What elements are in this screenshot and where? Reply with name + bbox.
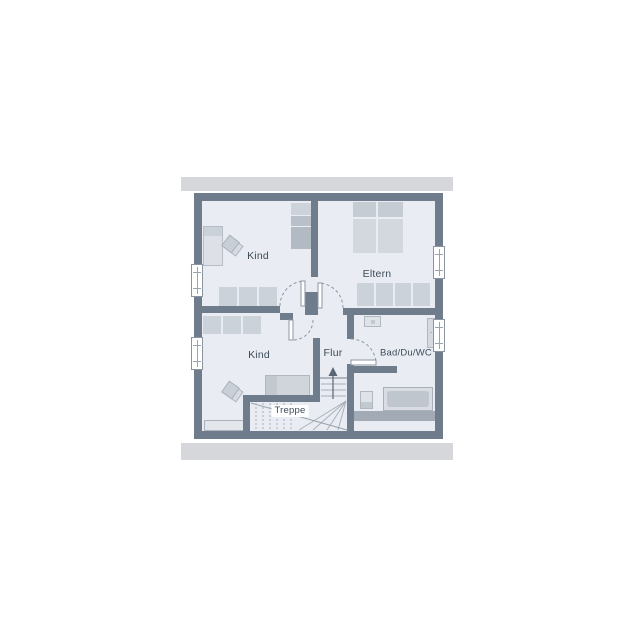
door-leaf-eltern (318, 283, 322, 308)
room-label-flur: Flur (324, 347, 343, 359)
room-label-bad: Bad/Du/WC (380, 348, 432, 359)
room-label-eltern: Eltern (363, 268, 392, 280)
plan-linework (0, 0, 636, 636)
room-label-treppe: Treppe (272, 405, 309, 417)
room-label-kind-bottom: Kind (248, 349, 270, 361)
room-label-kind-top: Kind (247, 250, 269, 262)
door-arc-kind-bottom (293, 320, 313, 340)
floor-plan: Kind Eltern Kind Flur Bad/Du/WC Treppe (0, 0, 636, 636)
door-leaf-kind-top (301, 281, 305, 306)
stair-up-arrow (329, 367, 338, 376)
door-leaf-kind-bottom (289, 320, 293, 340)
door-leaf-bad (351, 360, 376, 365)
